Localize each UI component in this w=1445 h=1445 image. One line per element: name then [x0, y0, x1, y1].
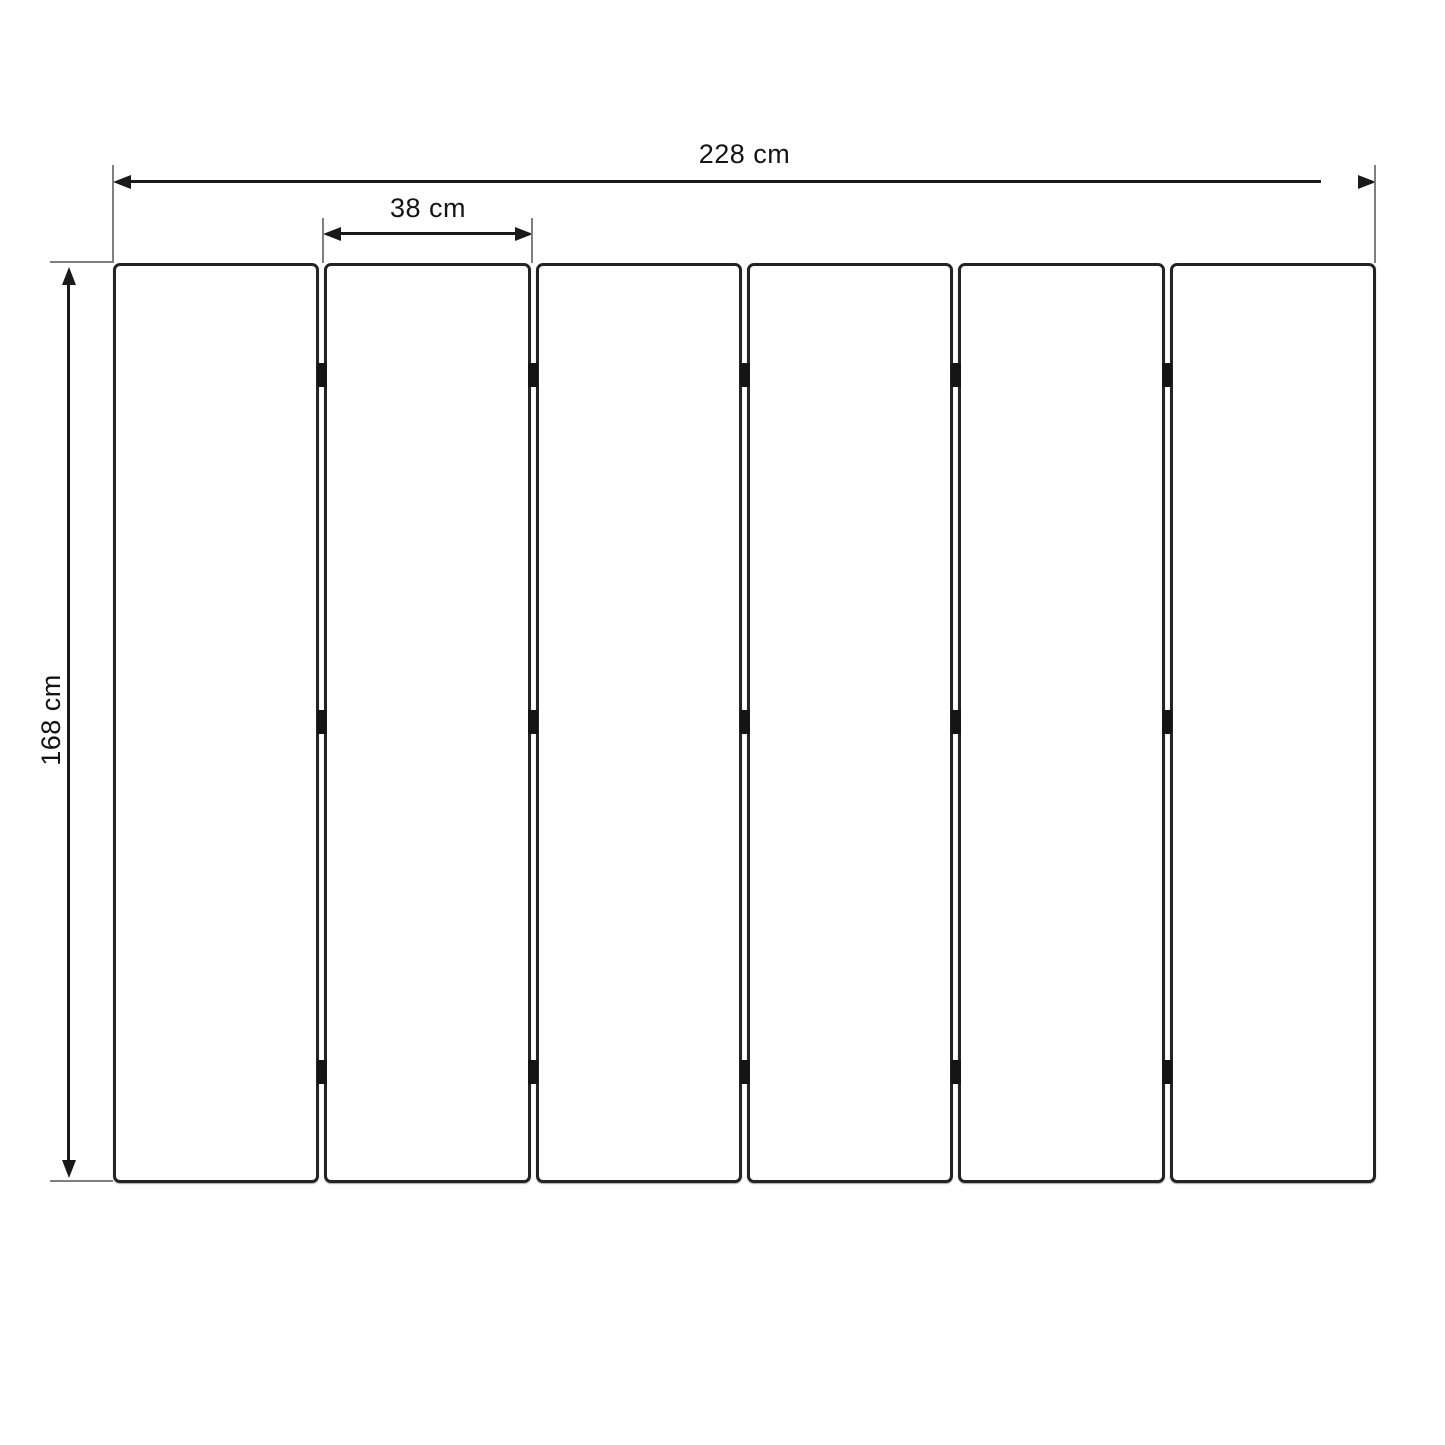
total-width-label: 228 cm [113, 138, 1376, 170]
panel-width-ext-line-left [322, 218, 324, 263]
panel [324, 263, 530, 1183]
hinge [951, 363, 961, 387]
hinge [1162, 1060, 1172, 1084]
total-width-dim-line [125, 180, 1321, 183]
total-width-arrow-left-icon [113, 175, 131, 189]
hinge [951, 710, 961, 734]
hinge [1162, 710, 1172, 734]
total-width-ext-line-left [112, 165, 114, 263]
hinge [317, 1060, 327, 1084]
diagram-canvas: 228 cm 38 cm 168 cm [0, 0, 1445, 1445]
height-dim-line [67, 280, 70, 1165]
hinge [740, 1060, 750, 1084]
hinge [740, 363, 750, 387]
panel-width-label: 38 cm [323, 192, 533, 224]
panel-width-ext-line-right [531, 218, 533, 263]
height-ext-line-bottom [50, 1180, 113, 1182]
panel [1170, 263, 1376, 1183]
panel [536, 263, 742, 1183]
panel-width-dim-line [334, 232, 522, 235]
hinge [528, 1060, 538, 1084]
hinge [740, 710, 750, 734]
panel [747, 263, 953, 1183]
hinge [951, 1060, 961, 1084]
height-arrow-down-icon [62, 1160, 76, 1178]
hinge [528, 363, 538, 387]
hinge [1162, 363, 1172, 387]
hinge [317, 363, 327, 387]
height-label: 168 cm [35, 674, 67, 766]
height-arrow-up-icon [62, 267, 76, 285]
total-width-ext-line-right [1374, 165, 1376, 263]
panel [113, 263, 319, 1183]
height-ext-line-top [50, 261, 113, 263]
panel [958, 263, 1164, 1183]
hinge [317, 710, 327, 734]
hinge [528, 710, 538, 734]
panel-width-arrow-left-icon [323, 227, 341, 241]
